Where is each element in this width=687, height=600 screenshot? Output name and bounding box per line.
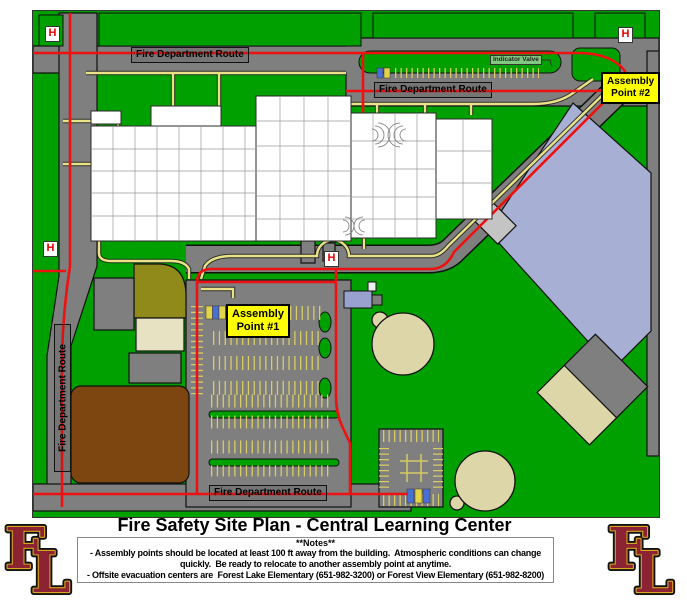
service-stub-1 <box>301 241 315 263</box>
page-title: Fire Safety Site Plan - Central Learning… <box>77 515 552 536</box>
notes-line-3: - Offsite evacuation centers are Forest … <box>78 570 553 581</box>
route-label-upper-right: Fire Department Route <box>374 82 492 98</box>
notes-line-2: quickly. Be ready to relocate to another… <box>78 559 553 570</box>
route-label-left-vertical: Fire Department Route <box>54 324 71 472</box>
notes-header: **Notes** <box>78 538 553 548</box>
gray-building-1 <box>94 278 134 330</box>
school-logo-right: F L F L F L <box>604 510 686 600</box>
site-map-svg <box>33 11 659 517</box>
baseball-field-2 <box>455 451 515 511</box>
hydrant-marker-top-right: H <box>618 27 633 43</box>
baseball-field-1 <box>372 313 434 375</box>
fire-safety-site-plan-page: Fire Department Route Fire Department Ro… <box>0 0 687 600</box>
olive-area <box>134 264 186 318</box>
route-label-bottom: Fire Department Route <box>209 485 327 501</box>
svg-text:L: L <box>634 540 673 600</box>
hydrant-marker-top-left: H <box>45 26 60 42</box>
beige-court <box>136 318 184 351</box>
indicator-valve-label: Indicator Valve <box>490 55 542 65</box>
utility-building-white <box>368 282 376 291</box>
notes-box: **Notes** - Assembly points should be lo… <box>77 537 554 583</box>
route-label-top: Fire Department Route <box>131 47 249 63</box>
site-map: Fire Department Route Fire Department Ro… <box>32 10 660 518</box>
dirt-field <box>71 386 189 483</box>
hydrant-marker-center: H <box>324 251 339 267</box>
dome-field <box>488 103 651 369</box>
school-logo-left: F L F L F L <box>1 510 83 600</box>
assembly-point-2-label: Assembly Point #2 <box>601 72 660 104</box>
utility-building-blue <box>344 291 372 308</box>
gray-building-2 <box>129 353 181 383</box>
logo-letter-l: L <box>31 540 70 600</box>
notes-line-1: - Assembly points should be located at l… <box>78 548 553 559</box>
assembly-point-1-label: Assembly Point #1 <box>226 304 290 338</box>
utility-building-gray <box>372 295 382 305</box>
hydrant-marker-left: H <box>43 241 58 257</box>
